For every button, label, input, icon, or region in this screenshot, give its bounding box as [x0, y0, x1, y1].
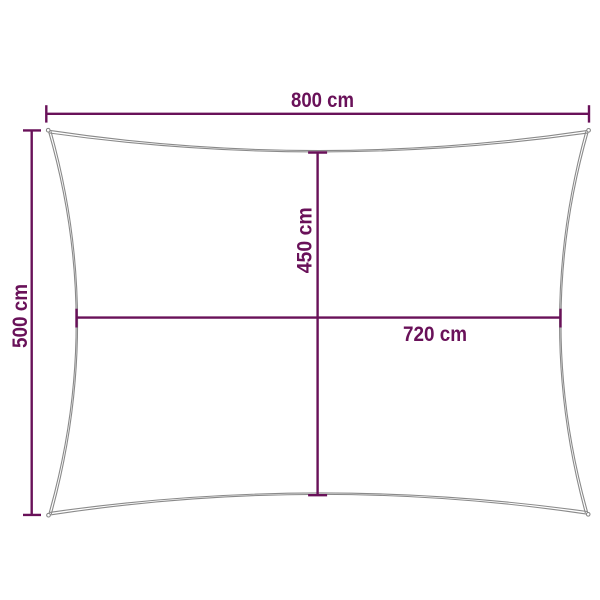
svg-text:500 cm: 500 cm	[8, 284, 32, 348]
svg-text:450 cm: 450 cm	[293, 207, 317, 273]
svg-text:720 cm: 720 cm	[403, 322, 467, 346]
svg-text:800 cm: 800 cm	[291, 88, 354, 112]
